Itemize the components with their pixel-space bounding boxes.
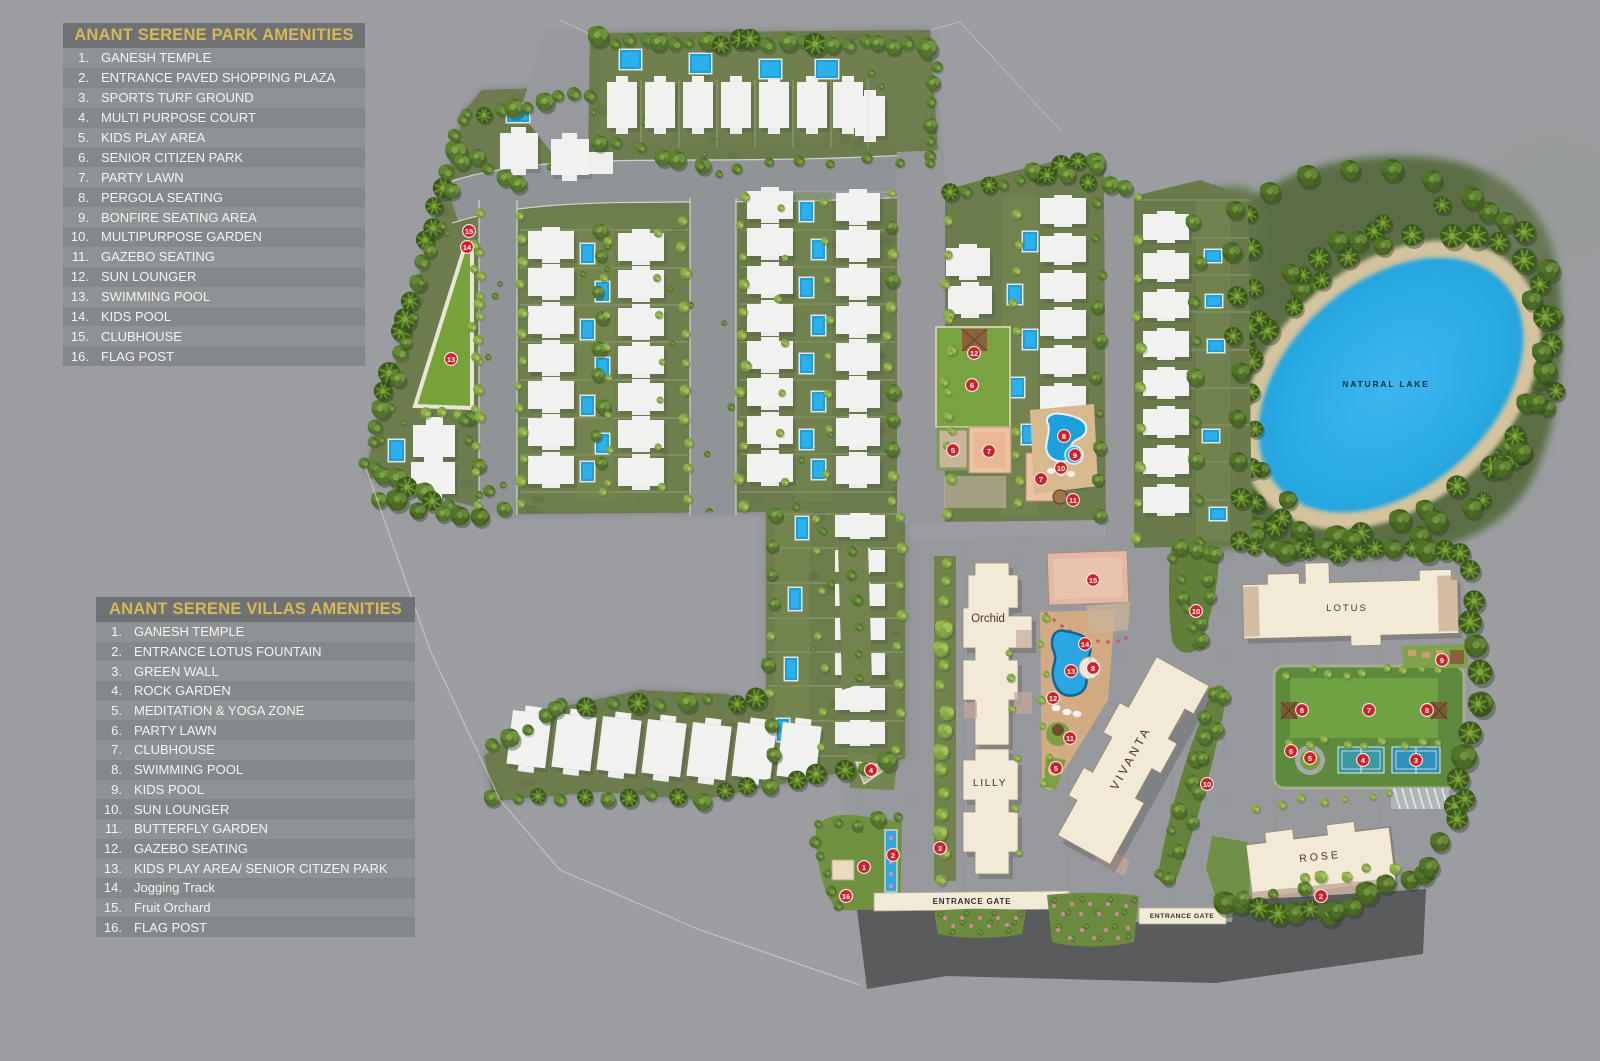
svg-text:7: 7 (1039, 475, 1043, 484)
svg-text:5: 5 (1308, 754, 1312, 763)
svg-text:13: 13 (1067, 667, 1075, 676)
svg-text:LOTUS: LOTUS (1326, 603, 1368, 614)
svg-text:9: 9 (1440, 656, 1444, 665)
svg-text:Orchid: Orchid (971, 613, 1005, 625)
svg-text:ENTRANCE GATE: ENTRANCE GATE (933, 897, 1012, 906)
svg-text:5: 5 (951, 446, 955, 455)
svg-text:6: 6 (1289, 747, 1293, 756)
svg-text:LILLY: LILLY (973, 777, 1007, 789)
svg-text:10: 10 (1203, 780, 1211, 789)
svg-text:ENTRANCE GATE: ENTRANCE GATE (1150, 913, 1215, 920)
svg-text:12: 12 (970, 349, 978, 358)
svg-text:9: 9 (1073, 451, 1077, 460)
svg-text:12: 12 (1049, 694, 1057, 703)
svg-text:1: 1 (862, 863, 866, 872)
svg-text:14: 14 (1081, 640, 1090, 649)
svg-text:15: 15 (1089, 576, 1097, 585)
svg-text:10: 10 (1192, 607, 1200, 616)
svg-text:6: 6 (970, 381, 974, 390)
svg-text:2: 2 (1319, 892, 1323, 901)
svg-text:8: 8 (1062, 432, 1066, 441)
svg-text:NATURAL LAKE: NATURAL LAKE (1342, 379, 1429, 389)
svg-text:8: 8 (1425, 706, 1429, 715)
svg-text:15: 15 (465, 227, 473, 236)
svg-text:5: 5 (1054, 764, 1058, 773)
svg-text:8: 8 (1091, 664, 1095, 673)
svg-text:16: 16 (842, 892, 850, 901)
svg-text:3: 3 (1414, 756, 1418, 765)
svg-text:14: 14 (463, 243, 472, 252)
svg-text:13: 13 (447, 355, 455, 364)
svg-text:11: 11 (1069, 496, 1077, 505)
svg-text:10: 10 (1057, 464, 1065, 473)
svg-text:11: 11 (1066, 734, 1074, 743)
svg-text:2: 2 (891, 851, 895, 860)
svg-text:7: 7 (987, 447, 991, 456)
svg-text:8: 8 (1300, 706, 1304, 715)
svg-text:7: 7 (1367, 706, 1371, 715)
svg-text:3: 3 (938, 844, 942, 853)
